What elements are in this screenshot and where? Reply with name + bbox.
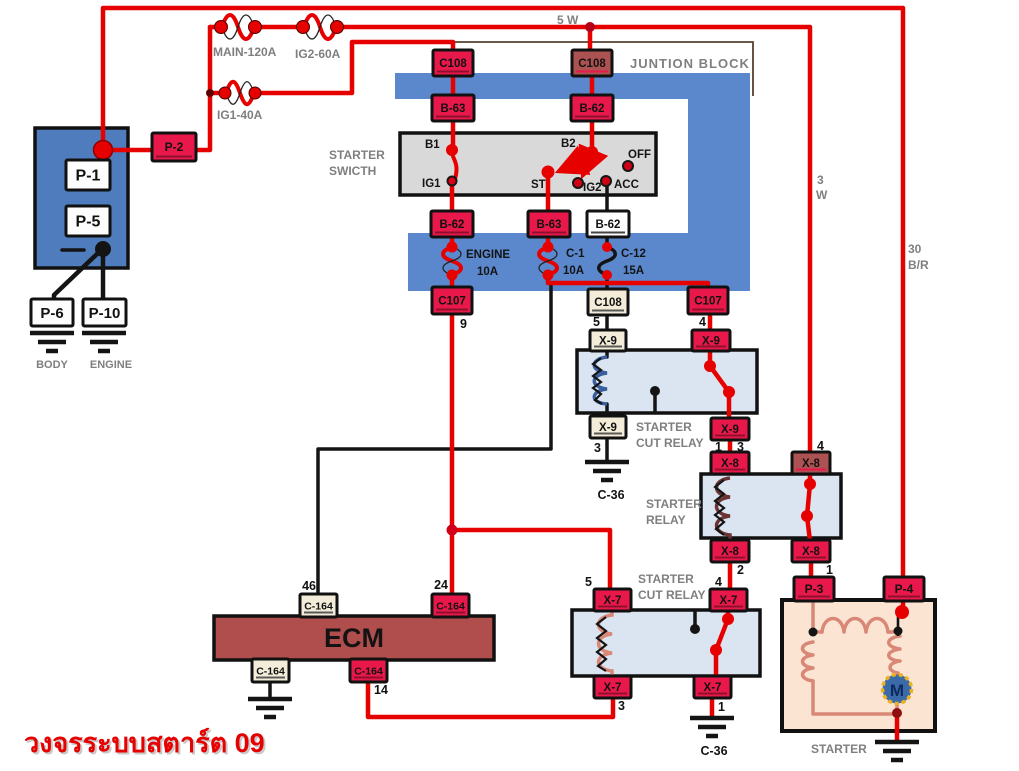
switch-terminal-b1 <box>446 144 458 156</box>
connector-c164_gnd: C-164 <box>252 659 289 682</box>
switch-terminal-b2 <box>586 146 598 158</box>
pin-eng9: 9 <box>460 317 467 331</box>
connector-x9_tl: X-9 <box>590 330 626 351</box>
pin-x9_3: 3 <box>594 441 601 455</box>
pin-x7_1: 1 <box>718 700 725 714</box>
connector-c108_b2: C108 <box>572 50 612 76</box>
connector-p10: P-10 <box>83 299 126 326</box>
connector-p1: P-1 <box>66 160 110 190</box>
connector-x9_br-label: X-9 <box>721 424 739 436</box>
connector-c108_ig1-label: C108 <box>439 58 467 70</box>
connector-p5: P-5 <box>66 206 110 236</box>
connector-c107_eng: C107 <box>432 287 472 314</box>
connector-c164_gnd-label: C-164 <box>256 666 285 678</box>
connector-b62_b2: B-62 <box>571 95 613 121</box>
connector-p1-label: P-1 <box>76 168 101 185</box>
connector-p2: P-2 <box>152 133 196 161</box>
fuse-engine-label-1: ENGINE <box>466 249 510 261</box>
fuse-ig1-label: IG1-40A <box>217 108 263 122</box>
connector-b62_ig1-label: B-62 <box>440 219 465 231</box>
starter-unit-label: STARTER <box>811 742 867 756</box>
connector-x9_bl-label: X-9 <box>599 422 617 434</box>
connector-x7_tl: X-7 <box>594 589 631 611</box>
connector-c164_46: C-164 <box>300 594 337 617</box>
connector-p3-label: P-3 <box>805 582 824 596</box>
connector-x8_br: X-8 <box>792 540 830 562</box>
wire-30br-label-2: B/R <box>908 258 929 272</box>
switch-label-b2: B2 <box>561 138 576 150</box>
connector-x7_br-label: X-7 <box>704 682 722 694</box>
body-ground-label: BODY <box>36 359 68 371</box>
pin-x8_1: 1 <box>826 563 833 577</box>
connector-x7_bl: X-7 <box>594 676 631 698</box>
connector-c108_acc-label: C108 <box>594 297 622 309</box>
wire-5w-label: 5 W <box>557 13 579 27</box>
switch-label-b1: B1 <box>425 139 440 151</box>
pin-x7_4: 4 <box>715 575 722 589</box>
starter-switch-label-1: STARTER <box>329 148 385 162</box>
connector-x8_bl: X-8 <box>711 540 749 562</box>
cut-relay2-label-2: CUT RELAY <box>638 588 706 602</box>
connector-b63_ig1: B-63 <box>432 95 474 121</box>
battery-negative-terminal <box>95 241 111 257</box>
connector-c164_24-label: C-164 <box>436 601 465 613</box>
connector-x9_tl-label: X-9 <box>599 336 617 348</box>
pin-x8_4: 4 <box>817 439 824 453</box>
switch-terminal-acc <box>601 176 611 186</box>
switch-terminal-off <box>623 161 633 171</box>
connector-b62_b2-label: B-62 <box>580 103 605 115</box>
connector-x8_br-label: X-8 <box>802 546 821 558</box>
starter-circuit-diagram: M P-2P-1P-5P-6P-10C10 <box>0 0 1019 766</box>
wire-3w-label-2: W <box>816 188 828 202</box>
connector-x7_tl-label: X-7 <box>604 595 622 607</box>
connector-p3: P-3 <box>794 577 834 601</box>
starter-switch-contact-red <box>895 605 909 619</box>
connector-b63_st: B-63 <box>528 211 570 237</box>
fuse-main-label: MAIN-120A <box>213 45 277 59</box>
pin-ecm24: 24 <box>434 578 448 592</box>
engine-ground-label: ENGINE <box>90 359 132 371</box>
connector-x8_tl: X-8 <box>711 452 749 474</box>
connector-c107_st-label: C107 <box>694 296 722 308</box>
fuse-c12-label-1: C-12 <box>621 248 646 260</box>
switch-label-st: ST <box>531 179 546 191</box>
switch-terminal-st <box>542 166 555 179</box>
junction-block-label: JUNTION BLOCK <box>630 56 750 71</box>
connector-c108_acc: C108 <box>588 289 628 315</box>
connector-c107_eng-label: C107 <box>438 296 466 308</box>
connector-x8_tr-label: X-8 <box>802 458 821 470</box>
pin-x7_3: 3 <box>618 699 625 713</box>
connector-x7_tr: X-7 <box>710 589 747 611</box>
fuse-engine-label-2: 10A <box>477 266 498 278</box>
connector-c164_46-label: C-164 <box>304 601 333 613</box>
cut-relay1-label-1: STARTER <box>636 420 692 434</box>
x7-nc-contact <box>690 624 700 634</box>
pin-st4: 4 <box>699 315 706 329</box>
pin-x8_2: 2 <box>737 563 744 577</box>
connector-p4-label: P-4 <box>895 582 914 596</box>
pin-x7_5: 5 <box>585 575 592 589</box>
fuse-c12-label-2: 15A <box>623 265 644 277</box>
switch-label-acc: ACC <box>614 179 639 191</box>
switch-label-ig2: IG2 <box>583 182 602 194</box>
connector-x7_bl-label: X-7 <box>604 682 622 694</box>
connector-p10-label: P-10 <box>89 305 121 322</box>
c36-label-b: C-36 <box>700 744 727 758</box>
switch-terminal-ig1 <box>448 177 457 186</box>
connector-x9_br: X-9 <box>711 418 749 440</box>
c36-label-a: C-36 <box>597 488 624 502</box>
cut-relay2-label-1: STARTER <box>638 572 694 586</box>
cut-relay1-label-2: CUT RELAY <box>636 436 704 450</box>
connector-c164_14: C-164 <box>350 659 387 682</box>
connector-p2-label: P-2 <box>165 140 184 154</box>
connector-p6: P-6 <box>31 299 73 326</box>
fuse-c1-label-2: 10A <box>563 265 584 277</box>
connector-b62_acc-label: B-62 <box>596 219 621 231</box>
ecm-label: ECM <box>324 623 384 653</box>
connector-b63_ig1-label: B-63 <box>441 103 466 115</box>
starter-relay-label-2: RELAY <box>646 513 686 527</box>
connector-p5-label: P-5 <box>76 214 101 231</box>
starter-circuit-page: M P-2P-1P-5P-6P-10C10 <box>0 0 1019 766</box>
connector-x8_tl-label: X-8 <box>721 458 740 470</box>
title-caption: วงจรระบบสตาร์ต 09 <box>24 727 265 758</box>
pin-acc5: 5 <box>593 315 600 329</box>
switch-label-ig1: IG1 <box>422 178 441 190</box>
connector-c164_14-label: C-164 <box>354 666 383 678</box>
fuse-c1-label-1: C-1 <box>566 248 585 260</box>
pin-ecm46: 46 <box>302 579 316 593</box>
pin-ecm14: 14 <box>374 683 388 697</box>
pin-x8_3: 3 <box>737 440 744 454</box>
starter-relay-label-1: STARTER <box>646 497 702 511</box>
connector-x9_tr-label: X-9 <box>702 336 720 348</box>
battery-positive-terminal <box>94 141 113 160</box>
pin-x9_1: 1 <box>715 440 722 454</box>
x9-nc-contact <box>650 386 660 396</box>
connector-x8_tr: X-8 <box>792 452 830 474</box>
connector-x9_bl: X-9 <box>590 416 626 438</box>
connector-x7_br: X-7 <box>694 676 731 698</box>
connector-x9_tr: X-9 <box>692 330 730 351</box>
switch-label-off: OFF <box>628 149 651 161</box>
connector-x8_bl-label: X-8 <box>721 546 740 558</box>
fuse-ig2-label: IG2-60A <box>295 47 341 61</box>
wire-3w-label-1: 3 <box>817 173 824 187</box>
starter-switch-label-2: SWICTH <box>329 164 376 178</box>
connector-p4: P-4 <box>884 577 924 601</box>
connector-x7_tr-label: X-7 <box>720 595 738 607</box>
motor-label: M <box>890 681 904 700</box>
connector-p6-label: P-6 <box>40 305 63 322</box>
connector-c107_st: C107 <box>688 287 728 314</box>
switch-terminal-ig2 <box>573 178 583 188</box>
wire-30br-label-1: 30 <box>908 242 922 256</box>
connector-b63_st-label: B-63 <box>537 219 562 231</box>
starter-switch-contact-black <box>894 627 903 636</box>
connector-c108_ig1: C108 <box>433 50 473 76</box>
connector-b62_acc: B-62 <box>587 211 629 237</box>
connector-c108_b2-label: C108 <box>578 58 606 70</box>
connector-c164_24: C-164 <box>432 594 469 617</box>
connector-b62_ig1: B-62 <box>431 211 473 237</box>
